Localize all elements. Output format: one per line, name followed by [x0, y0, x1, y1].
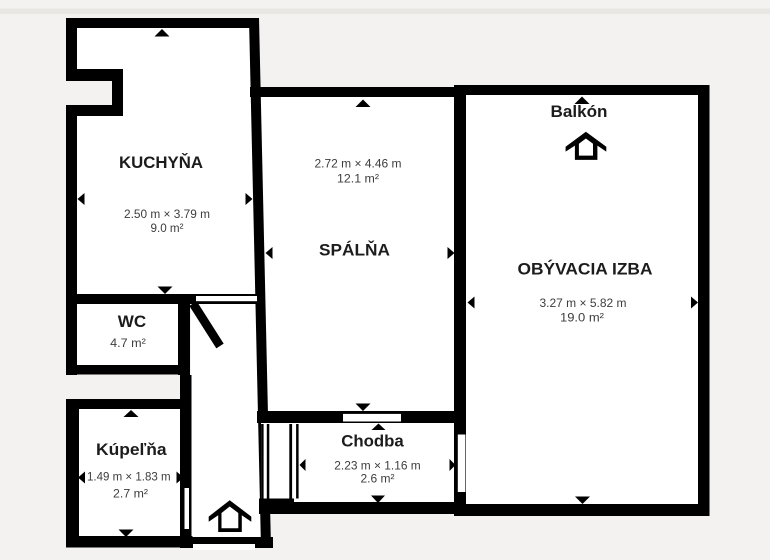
svg-text:1.49 m × 1.83 m: 1.49 m × 1.83 m [87, 469, 171, 483]
svg-text:2.23 m × 1.16 m: 2.23 m × 1.16 m [334, 458, 420, 472]
svg-text:OBÝVACIA IZBA: OBÝVACIA IZBA [518, 260, 653, 279]
svg-text:2.72 m × 4.46 m: 2.72 m × 4.46 m [315, 157, 402, 171]
svg-text:SPÁLŇA: SPÁLŇA [319, 240, 390, 259]
svg-text:Chodba: Chodba [341, 432, 404, 451]
svg-text:9.0 m²: 9.0 m² [151, 221, 184, 235]
svg-text:4.7 m²: 4.7 m² [110, 336, 146, 350]
svg-text:WC: WC [118, 312, 146, 331]
svg-text:KUCHYŇA: KUCHYŇA [119, 153, 203, 172]
svg-text:2.6 m²: 2.6 m² [361, 472, 395, 486]
svg-text:2.50 m × 3.79 m: 2.50 m × 3.79 m [124, 207, 210, 221]
svg-text:19.0 m²: 19.0 m² [560, 310, 604, 324]
svg-text:12.1 m²: 12.1 m² [337, 172, 379, 186]
svg-text:Kúpeľňa: Kúpeľňa [96, 440, 167, 459]
svg-text:2.7 m²: 2.7 m² [113, 486, 148, 500]
svg-text:3.27 m × 5.82 m: 3.27 m × 5.82 m [540, 296, 627, 310]
svg-text:Balkón: Balkón [551, 102, 608, 121]
